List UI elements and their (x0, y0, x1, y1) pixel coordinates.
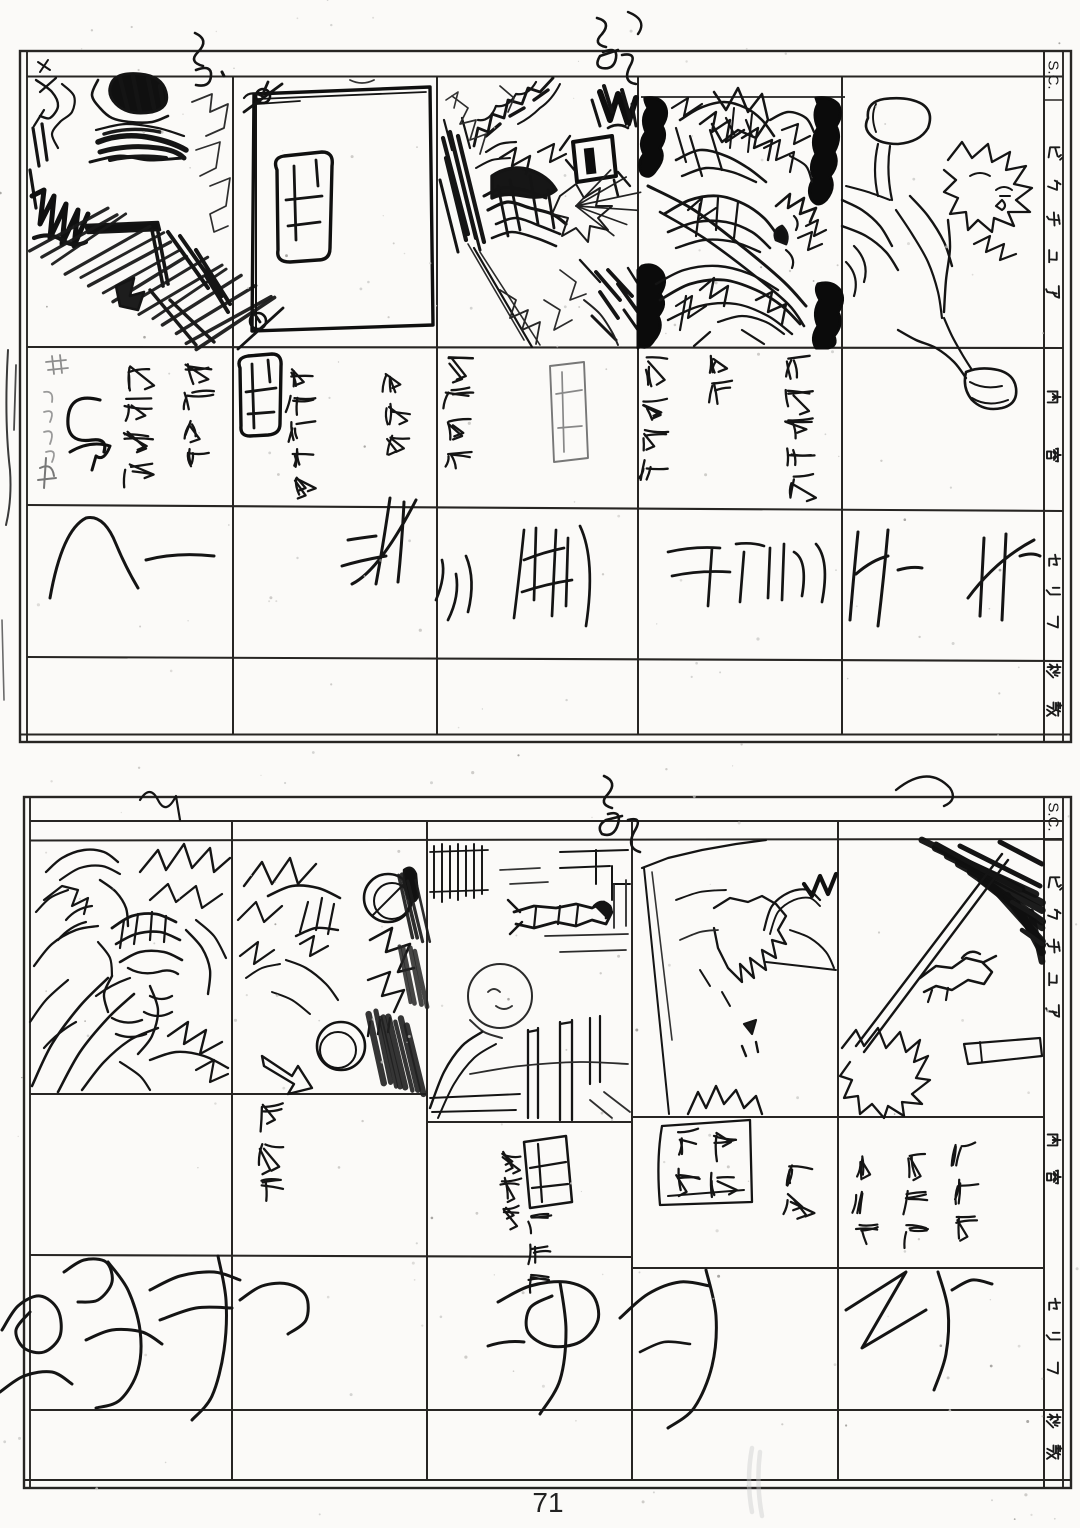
svg-text:S.C.: S.C. (1045, 60, 1062, 89)
svg-text:S.C.: S.C. (1045, 802, 1062, 831)
svg-text:71: 71 (532, 1487, 563, 1518)
